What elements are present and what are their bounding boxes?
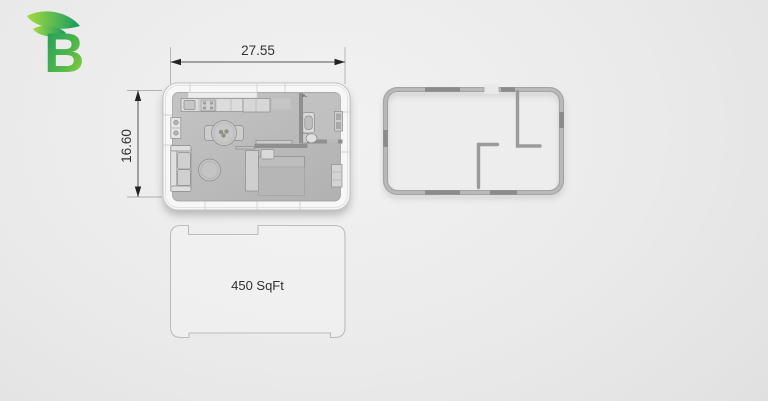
arrow-left-icon [171, 59, 182, 65]
height-label: 16.60 [119, 129, 134, 163]
shower-head-icon [302, 94, 305, 97]
render-canvas: B 27.55 16.60 [0, 0, 768, 401]
stove [201, 100, 215, 111]
sink [184, 101, 195, 110]
brand-logo: B [27, 11, 84, 84]
empty-plan-floor [385, 89, 562, 193]
arrow-down-icon [135, 187, 141, 198]
bath-shelf-item [336, 122, 341, 129]
kitchen-wall-recess [188, 93, 257, 99]
width-dimension: 27.55 [171, 43, 346, 84]
vanity-basin [305, 116, 313, 130]
fridge-cabinet [243, 99, 270, 113]
empty-wall-plan [384, 84, 564, 195]
bath-shelf-item [336, 114, 341, 121]
bathroom-wall-stub [338, 140, 343, 144]
door-opening [484, 84, 499, 94]
sofa [171, 146, 191, 192]
area-label: 450 SqFt [231, 278, 284, 293]
cabinet-knob-icon [174, 120, 178, 124]
arrow-up-icon [135, 91, 141, 102]
furnished-floor-plan [163, 83, 350, 210]
bed [246, 150, 305, 196]
floorplan-scene: B 27.55 16.60 [0, 0, 768, 401]
divider-ledge [236, 147, 255, 150]
entry-mat [272, 99, 291, 110]
logo-letter: B [44, 21, 84, 84]
coffee-table [199, 159, 221, 181]
divider-wall [255, 144, 308, 148]
width-label: 27.55 [241, 43, 275, 58]
pillow [261, 150, 274, 160]
arrow-right-icon [335, 59, 346, 65]
footprint-outline: 450 SqFt [171, 226, 346, 338]
bathroom-wall-vertical [299, 93, 303, 140]
height-dimension: 16.60 [119, 91, 162, 198]
dining-table [212, 121, 237, 146]
toilet-bowl [306, 134, 317, 143]
cabinet-knob-icon [174, 131, 178, 135]
divider-shelf [256, 141, 292, 145]
dresser [332, 165, 343, 188]
